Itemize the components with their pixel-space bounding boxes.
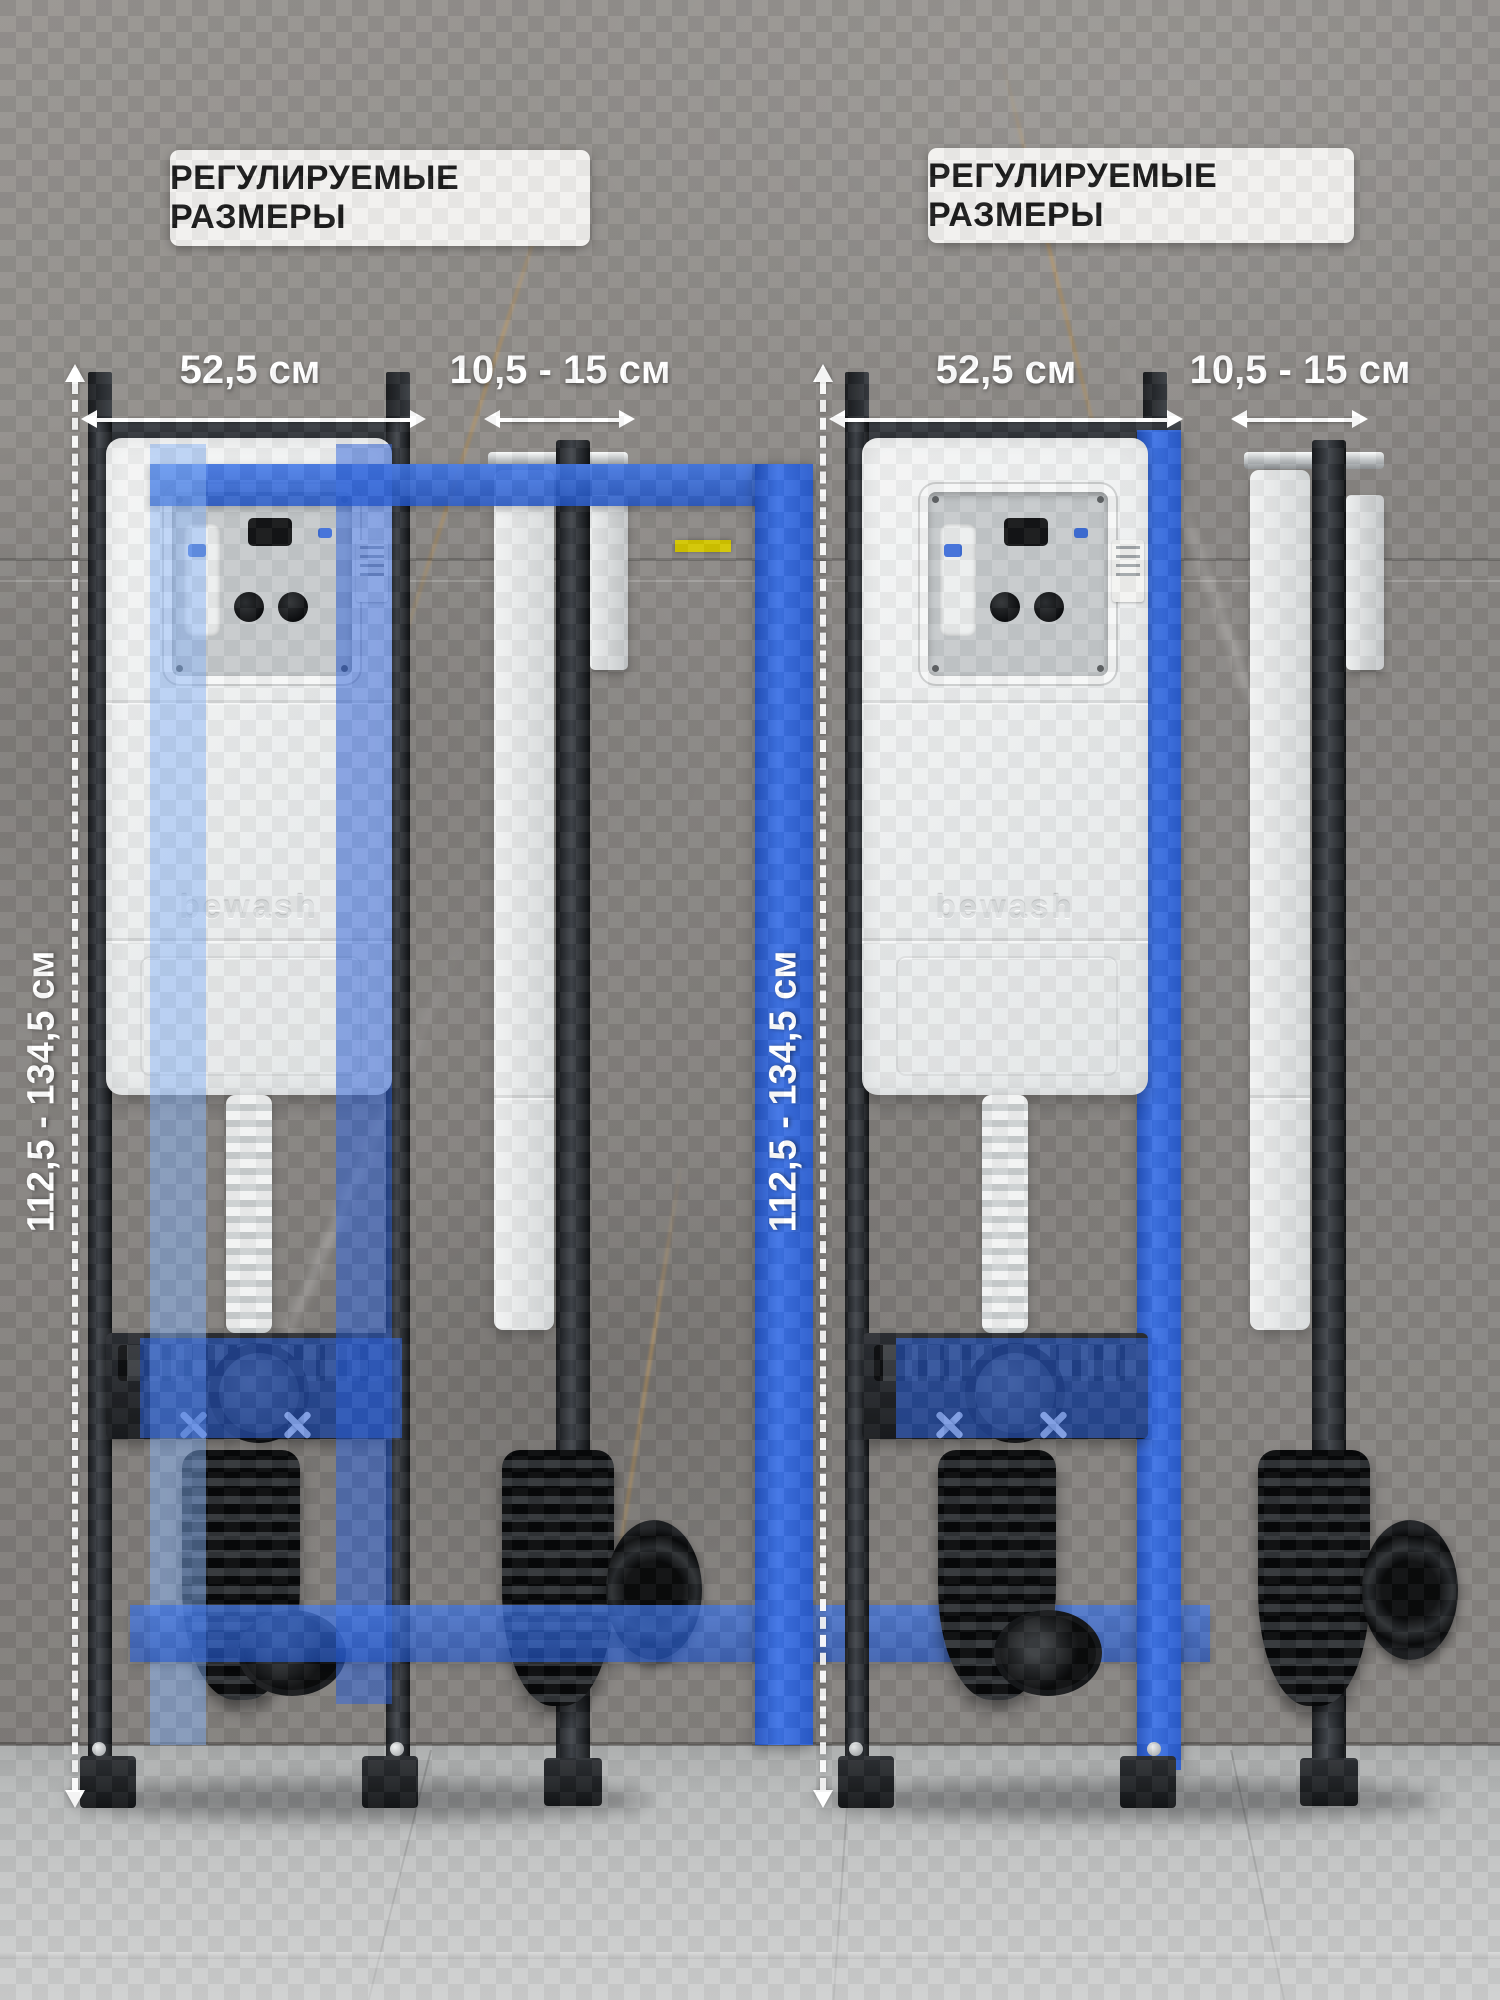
- left-banner: РЕГУЛИРУЕМЫЕ РАЗМЕРЫ: [170, 150, 590, 246]
- arrow-right-icon: [1352, 410, 1368, 428]
- left-sideview-cistern-slab: [494, 470, 554, 1330]
- mechanism-port-left: [990, 592, 1020, 622]
- right-lower-blue-overlay: [896, 1338, 1158, 1438]
- arrow-left-icon: [1231, 410, 1247, 428]
- left-sideview-drain-pipe: [502, 1450, 614, 1706]
- blue-clip: [944, 544, 962, 557]
- yellow-glitch-marker: [675, 540, 731, 552]
- right-sideview-seam: [1250, 1095, 1310, 1098]
- right-sideview-wall-plate: [1346, 495, 1384, 670]
- window-screw: [1097, 665, 1104, 672]
- left-depth-dimension-label: 10,5 - 15 см: [410, 348, 710, 393]
- left-blue-highlight-band-2: [336, 444, 392, 1704]
- fill-valve-tube: [940, 524, 976, 636]
- left-width-dimension-arrow: [97, 418, 410, 422]
- right-sideview-drain-pipe: [1258, 1450, 1370, 1706]
- right-depth-dimension-arrow: [1247, 418, 1352, 422]
- right-cistern-seam: [862, 700, 1148, 703]
- left-lower-blue-overlay: [140, 1338, 402, 1438]
- arrow-up-icon: [813, 364, 833, 382]
- right-foot-bolt: [849, 1742, 863, 1756]
- arrow-up-icon: [65, 364, 85, 382]
- right-cistern-warning-sticker: [1112, 540, 1144, 602]
- flush-valve-cap: [1004, 518, 1048, 546]
- left-depth-dimension-arrow: [500, 418, 619, 422]
- window-screw: [932, 665, 939, 672]
- blue-clip: [318, 528, 332, 538]
- right-banner: РЕГУЛИРУЕМЫЕ РАЗМЕРЫ: [928, 148, 1354, 243]
- arrow-right-icon: [1167, 410, 1183, 428]
- left-sideview-seam: [494, 1095, 554, 1098]
- arrow-left-icon: [829, 410, 845, 428]
- right-frame-foot-right: [1120, 1756, 1176, 1808]
- right-width-dimension-label: 52,5 см: [856, 348, 1156, 393]
- right-flush-pipe: [982, 1095, 1028, 1333]
- left-foot-bolt: [390, 1742, 404, 1756]
- right-foot-bolt: [1147, 1742, 1161, 1756]
- arrow-down-icon: [813, 1790, 833, 1808]
- right-cistern-emboss-panel: [896, 956, 1118, 1076]
- product-scene: bewash 112,5 - 134,5 см 52,5 см 10,5 - 1…: [0, 0, 1500, 2000]
- right-drain-outlet: [994, 1610, 1102, 1696]
- right-sideview-foot: [1300, 1758, 1358, 1806]
- arrow-left-icon: [484, 410, 500, 428]
- right-width-dimension-arrow: [845, 418, 1167, 422]
- left-width-dimension-label: 52,5 см: [100, 348, 400, 393]
- right-height-dimension-label: 112,5 - 134,5 см: [763, 927, 806, 1257]
- right-frame-foot-left: [838, 1756, 894, 1808]
- mechanism-port-left: [234, 592, 264, 622]
- right-cistern-seam: [862, 938, 1148, 941]
- right-sideview-cistern-slab: [1250, 470, 1310, 1330]
- blue-clip: [1074, 528, 1088, 538]
- right-cistern-access-window: [928, 492, 1108, 676]
- right-height-dimension-line: [820, 382, 826, 1790]
- left-frame-foot-right: [362, 1756, 418, 1808]
- left-frame-foot-left: [80, 1756, 136, 1808]
- left-height-dimension-label: 112,5 - 134,5 см: [21, 927, 64, 1257]
- arrow-right-icon: [410, 410, 426, 428]
- right-sideview-drain-flange: [1362, 1520, 1458, 1660]
- right-cistern-logo: bewash: [862, 888, 1148, 926]
- left-height-dimension-line: [72, 382, 78, 1790]
- mechanism-port-right: [278, 592, 308, 622]
- arrow-left-icon: [81, 410, 97, 428]
- blue-top-band: [150, 464, 812, 506]
- left-foot-bolt: [92, 1742, 106, 1756]
- left-blue-highlight-band: [150, 444, 206, 1745]
- arrow-down-icon: [65, 1790, 85, 1808]
- flush-valve-cap: [248, 518, 292, 546]
- window-screw: [932, 496, 939, 503]
- floor-groove: [0, 1952, 1500, 1959]
- mechanism-port-right: [1034, 592, 1064, 622]
- window-screw: [1097, 496, 1104, 503]
- left-flush-pipe: [226, 1095, 272, 1333]
- right-depth-dimension-label: 10,5 - 15 см: [1150, 348, 1450, 393]
- arrow-right-icon: [619, 410, 635, 428]
- wall-floor-junction: [0, 1742, 1500, 1746]
- left-sideview-wall-plate: [590, 495, 628, 670]
- left-sideview-foot: [544, 1758, 602, 1806]
